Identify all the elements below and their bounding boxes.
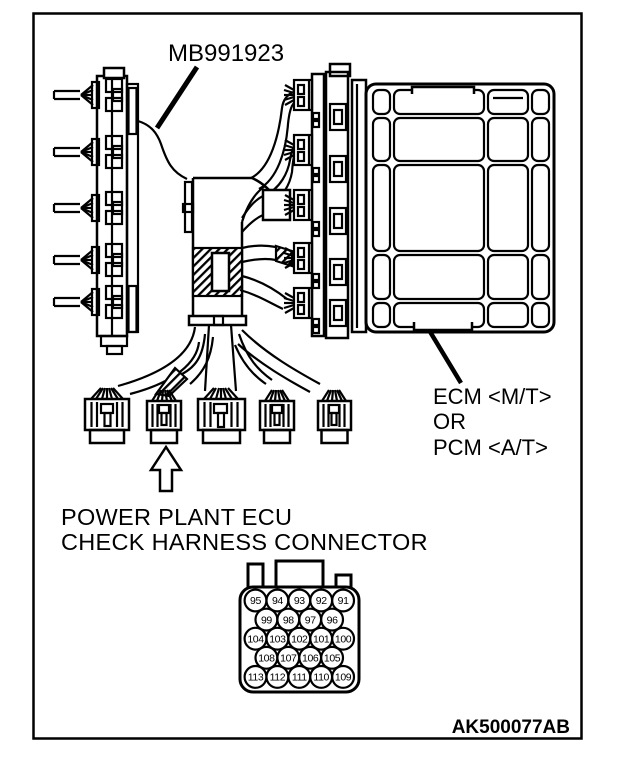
ecm-bottom-tab xyxy=(414,322,472,330)
pin-number: 103 xyxy=(269,633,286,645)
pin-number: 109 xyxy=(335,672,352,684)
left-rail-terminal-blocks xyxy=(106,79,122,318)
pin-number: 94 xyxy=(272,595,283,607)
left-wire-lead xyxy=(54,195,99,221)
trunk-collar xyxy=(189,316,246,325)
rail-to-trunk-wire xyxy=(138,121,187,179)
pinout-pins: 95 94 93 92 91 99 98 97 96 104 103 102 1… xyxy=(245,590,354,688)
pin-number: 112 xyxy=(270,672,286,684)
ecm-label-line1: ECM <M/T> xyxy=(433,384,552,409)
caption-line1: POWER PLANT ECU xyxy=(61,504,292,530)
right-connector-rail xyxy=(284,64,350,338)
figure-code: AK500077AB xyxy=(452,717,570,738)
pin-number: 91 xyxy=(338,595,349,607)
harness-lower-wires xyxy=(118,325,320,396)
ecm-label-line3: PCM <A/T> xyxy=(433,435,548,460)
rail-connector xyxy=(284,135,312,165)
pin-number: 96 xyxy=(327,614,338,626)
pin-number: 98 xyxy=(283,614,294,626)
pin-number: 99 xyxy=(261,614,272,626)
ecm-module xyxy=(352,80,554,332)
ecm-top-tab xyxy=(412,87,474,94)
pointer-arrow xyxy=(151,447,181,491)
check-connector xyxy=(147,390,181,443)
left-wire-lead xyxy=(54,247,99,273)
left-wire-lead xyxy=(54,82,99,108)
pin-number: 95 xyxy=(250,595,261,607)
left-wire-lead xyxy=(54,289,99,315)
ecm-label: ECM <M/T> OR PCM <A/T> xyxy=(433,384,552,460)
pin-number: 102 xyxy=(291,633,308,645)
diagram-canvas: MB991923 xyxy=(0,0,624,768)
pin-number: 108 xyxy=(258,653,275,665)
left-wire-lead xyxy=(54,139,99,165)
pin-number: 97 xyxy=(305,614,316,626)
pin-number: 101 xyxy=(313,633,330,645)
pin-number: 110 xyxy=(313,672,329,684)
pin-number: 92 xyxy=(316,595,327,607)
pin-number: 100 xyxy=(335,633,352,645)
check-connector xyxy=(198,388,245,443)
pinout-connector: 95 94 93 92 91 99 98 97 96 104 103 102 1… xyxy=(240,561,359,692)
rail-connector xyxy=(284,243,312,273)
caption-line2: CHECK HARNESS CONNECTOR xyxy=(61,529,428,555)
pin-number: 111 xyxy=(292,672,307,684)
check-connector xyxy=(318,390,351,443)
ecm-leader-line xyxy=(429,330,461,383)
pin-number: 104 xyxy=(247,633,264,645)
ecm-panel-grid xyxy=(373,90,549,327)
check-harness-connectors xyxy=(85,388,351,443)
left-connector-bank xyxy=(54,68,138,354)
pin-number: 113 xyxy=(248,672,264,684)
rail-connector xyxy=(284,80,312,110)
pin-number: 107 xyxy=(280,653,297,665)
pin-number: 105 xyxy=(324,653,341,665)
pin-number: 106 xyxy=(302,653,319,665)
rail-connector xyxy=(284,288,312,318)
check-connector xyxy=(85,388,129,443)
trunk-tape-window xyxy=(212,253,229,291)
ecm-label-line2: OR xyxy=(433,409,466,434)
check-connector xyxy=(260,390,294,443)
tool-leader-line xyxy=(157,67,197,128)
tool-label: MB991923 xyxy=(168,40,284,67)
pin-number: 93 xyxy=(294,595,305,607)
